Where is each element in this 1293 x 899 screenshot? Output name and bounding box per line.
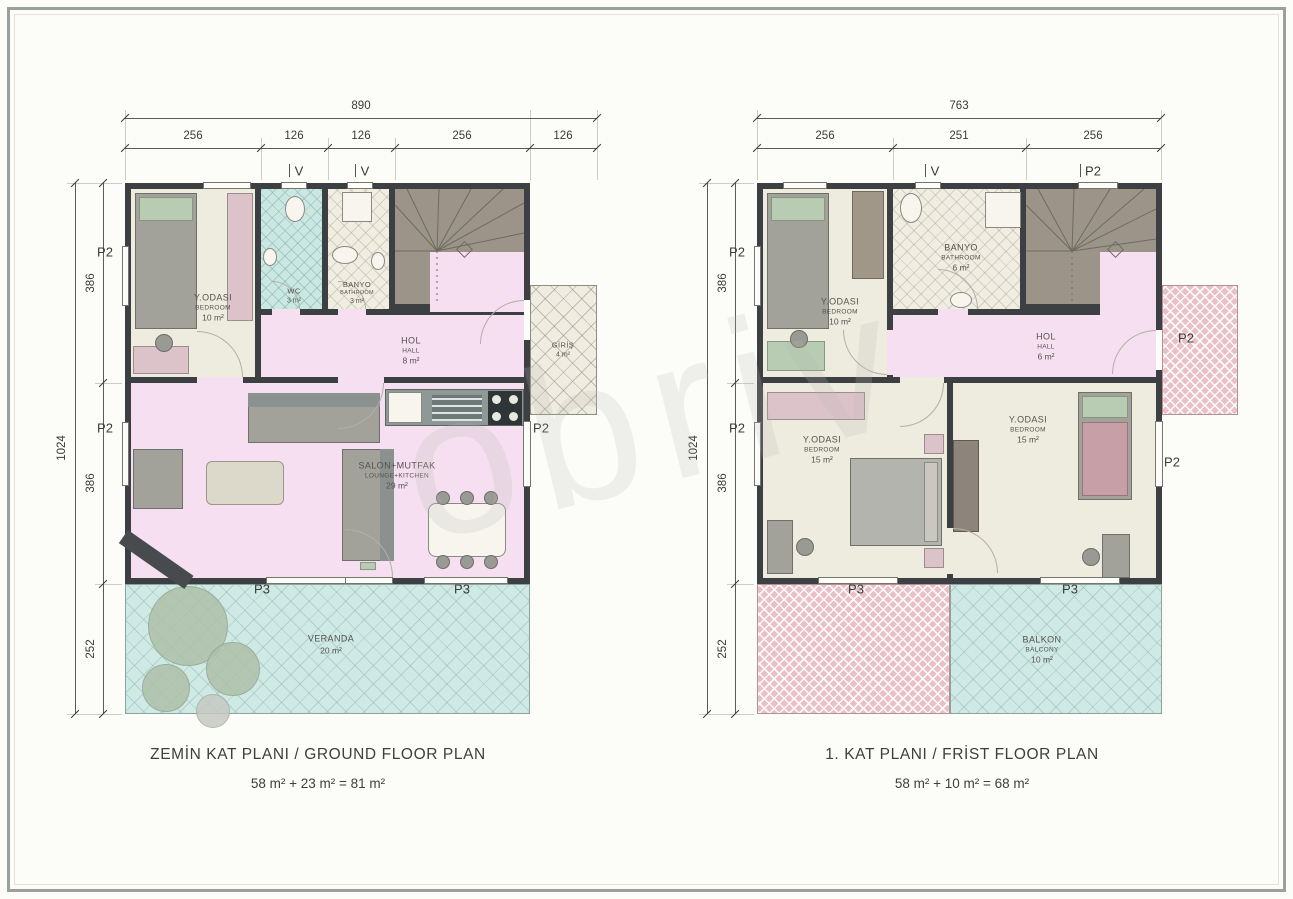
- coffee-table: [206, 461, 284, 505]
- oven: [432, 395, 482, 421]
- room-label-bath: BANYO BATHROOM 6 m²: [941, 242, 980, 273]
- desk-2: [767, 520, 793, 574]
- dim-segment: 256: [815, 130, 834, 142]
- dim-segment: 126: [284, 130, 303, 142]
- dim-line-total-height: [75, 183, 76, 714]
- dim-segment: 256: [1083, 130, 1102, 142]
- ext-line: [727, 383, 754, 384]
- window-marker: P2: [97, 421, 113, 436]
- ext-line: [95, 383, 122, 384]
- veranda-door: [345, 577, 393, 584]
- chair: [796, 538, 814, 556]
- vent-window: [281, 182, 307, 189]
- dim-total-height: 1024: [56, 435, 68, 461]
- window: [523, 421, 531, 487]
- chair: [1082, 548, 1100, 566]
- vent-marker: V: [931, 164, 940, 179]
- ext-line: [95, 584, 122, 585]
- vent-marker: V: [361, 164, 370, 179]
- armchair: [133, 449, 183, 509]
- window: [122, 422, 129, 486]
- ext-line: [328, 138, 329, 180]
- bed-pillows: [924, 462, 938, 542]
- desk-3: [1102, 534, 1130, 578]
- window: [1155, 421, 1163, 487]
- nightstand: [924, 548, 944, 568]
- door-gap-bath: [938, 309, 968, 315]
- room-label-bedroom: Y.ODASI BEDROOM 10 m²: [821, 296, 859, 327]
- nightstand: [924, 434, 944, 454]
- stairs-treads: [395, 189, 524, 304]
- wall-salon-top: [125, 377, 530, 383]
- room-label-bedroom: Y.ODASI BEDROOM 10 m²: [194, 292, 232, 323]
- dim-segment: 386: [717, 473, 729, 492]
- window-marker: P3: [1062, 582, 1078, 597]
- chair: [155, 334, 173, 352]
- wall-wc-bath: [322, 189, 328, 309]
- chair: [790, 330, 808, 348]
- dim-segment: 251: [949, 130, 968, 142]
- window-marker: P2: [97, 245, 113, 260]
- wall-bedroom-wc: [255, 189, 261, 377]
- burner: [492, 395, 501, 404]
- wall-band-divider: [757, 377, 1162, 383]
- dim-segment: 252: [85, 639, 97, 658]
- burner: [492, 412, 501, 421]
- wc-sink: [263, 248, 277, 266]
- dim-segment: 256: [452, 130, 471, 142]
- door-gap-bath: [338, 309, 366, 315]
- window-marker: P2: [729, 421, 745, 436]
- window: [754, 246, 761, 306]
- dim-segment: 386: [717, 273, 729, 292]
- ext-line: [395, 138, 396, 180]
- dim-segment: 386: [85, 273, 97, 292]
- plant: [196, 694, 230, 728]
- plant: [206, 642, 260, 696]
- window: [122, 246, 129, 306]
- ext-line: [1026, 138, 1027, 180]
- wc-toilet: [285, 196, 305, 222]
- window-marker: P2: [729, 245, 745, 260]
- plan-title-ground: ZEMİN KAT PLANI / GROUND FLOOR PLAN: [150, 746, 486, 764]
- roof-hatch: [757, 584, 950, 714]
- window-marker: P2: [1178, 331, 1194, 346]
- room-label-hall: HOL HALL 6 m²: [1036, 331, 1056, 362]
- window-marker: P3: [848, 582, 864, 597]
- wardrobe-3: [953, 440, 979, 532]
- bath-toilet: [332, 246, 358, 264]
- bed-pillow: [139, 197, 193, 221]
- wardrobe: [852, 191, 884, 279]
- marker-tick: [289, 164, 290, 177]
- dim-segment: 126: [351, 130, 370, 142]
- bed-pillow: [771, 197, 825, 221]
- chair: [460, 555, 474, 569]
- window: [1078, 182, 1118, 189]
- window-marker: P2: [1164, 455, 1180, 470]
- plan-area-ground: 58 m² + 23 m² = 81 m²: [251, 776, 385, 791]
- chair: [436, 491, 450, 505]
- room-label-wc: WC 3 m²: [287, 287, 301, 306]
- dim-segment: 256: [183, 130, 202, 142]
- bath-sink: [371, 252, 385, 270]
- dim-segment: 252: [717, 639, 729, 658]
- window-marker: P2: [1085, 164, 1101, 179]
- stairs-treads: [1026, 189, 1156, 304]
- dim-total-height: 1024: [688, 435, 700, 461]
- plan-area-first: 58 m² + 10 m² = 68 m²: [895, 776, 1029, 791]
- window: [1040, 577, 1120, 584]
- room-label-hall: HOL HALL 8 m²: [401, 335, 421, 366]
- plant: [142, 664, 190, 712]
- dining-table: [428, 503, 506, 557]
- room-label-entry: GİRİŞ 4 m²: [552, 341, 574, 360]
- room-label-balcony: BALKON BALCONY 10 m²: [1023, 634, 1062, 665]
- side-balcony: [1162, 285, 1238, 415]
- dim-segment: 126: [553, 130, 572, 142]
- burner: [509, 412, 518, 421]
- ext-line: [893, 138, 894, 180]
- dim-line-side-segments: [103, 183, 104, 714]
- dim-segment: 386: [85, 473, 97, 492]
- wardrobe-2: [767, 392, 865, 420]
- vent-marker: V: [295, 164, 304, 179]
- dim-total-width: 890: [351, 100, 370, 112]
- shower: [985, 192, 1021, 228]
- door-gap-bedroom: [887, 330, 893, 375]
- door-gap-bedroom: [197, 377, 243, 383]
- chair: [484, 555, 498, 569]
- window: [266, 577, 352, 584]
- dim-total-width: 763: [949, 100, 968, 112]
- window-marker: P3: [254, 582, 270, 597]
- room-label-bedroom2: Y.ODASI BEDROOM 15 m²: [803, 434, 841, 465]
- window-marker: P2: [533, 421, 549, 436]
- room-label-salon: SALON+MUTFAK LOUNGE+KITCHEN 29 m²: [358, 460, 435, 491]
- door-gap-wc: [272, 309, 300, 315]
- drawing-sheet: 890 256 126 126 256 126 1024 386 386 252: [0, 0, 1293, 899]
- shower: [342, 192, 372, 222]
- ext-line: [727, 584, 754, 585]
- bath-toilet: [900, 193, 922, 223]
- room-label-bath: BANYO BATHROOM 3 m²: [340, 280, 374, 306]
- dim-line-side-segments: [735, 183, 736, 714]
- chair: [484, 491, 498, 505]
- window: [203, 182, 251, 189]
- dim-line-segments: [757, 148, 1161, 149]
- dim-line-total-height: [707, 183, 708, 714]
- bed-3-mattress: [1082, 422, 1128, 496]
- vent-window: [347, 182, 373, 189]
- dim-line-total-width: [125, 118, 597, 119]
- chair: [460, 491, 474, 505]
- marker-tick: [1080, 164, 1081, 177]
- window: [783, 182, 827, 189]
- marker-tick: [925, 164, 926, 177]
- marker-tick: [355, 164, 356, 177]
- bed-3-pillow: [1082, 396, 1128, 418]
- window-marker: P3: [454, 582, 470, 597]
- plan-title-first: 1. KAT PLANI / FRİST FLOOR PLAN: [825, 746, 1099, 764]
- dim-line-total-width: [757, 118, 1161, 119]
- ext-line: [261, 138, 262, 180]
- room-label-bedroom3: Y.ODASI BEDROOM 15 m²: [1009, 414, 1047, 445]
- window: [754, 422, 761, 486]
- room-label-veranda: VERANDA 20 m²: [308, 634, 354, 657]
- burner: [509, 395, 518, 404]
- vent-window: [915, 182, 941, 189]
- chair: [436, 555, 450, 569]
- kitchen-sink: [388, 392, 422, 423]
- dim-line-segments: [125, 148, 597, 149]
